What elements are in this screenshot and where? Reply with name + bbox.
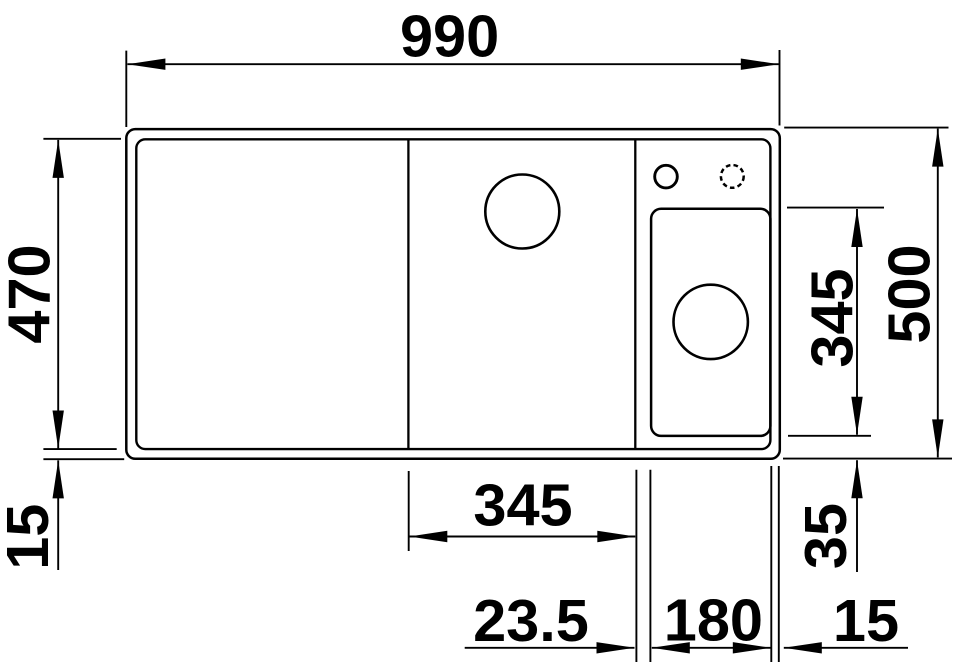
svg-text:15: 15 [0, 504, 61, 570]
svg-text:35: 35 [792, 503, 859, 569]
svg-text:990: 990 [400, 3, 499, 70]
svg-text:180: 180 [664, 587, 763, 654]
svg-text:500: 500 [876, 244, 943, 343]
svg-text:345: 345 [473, 472, 572, 539]
svg-text:470: 470 [0, 244, 62, 343]
svg-text:345: 345 [799, 268, 866, 367]
svg-text:15: 15 [833, 587, 899, 654]
svg-text:23.5: 23.5 [473, 587, 589, 654]
